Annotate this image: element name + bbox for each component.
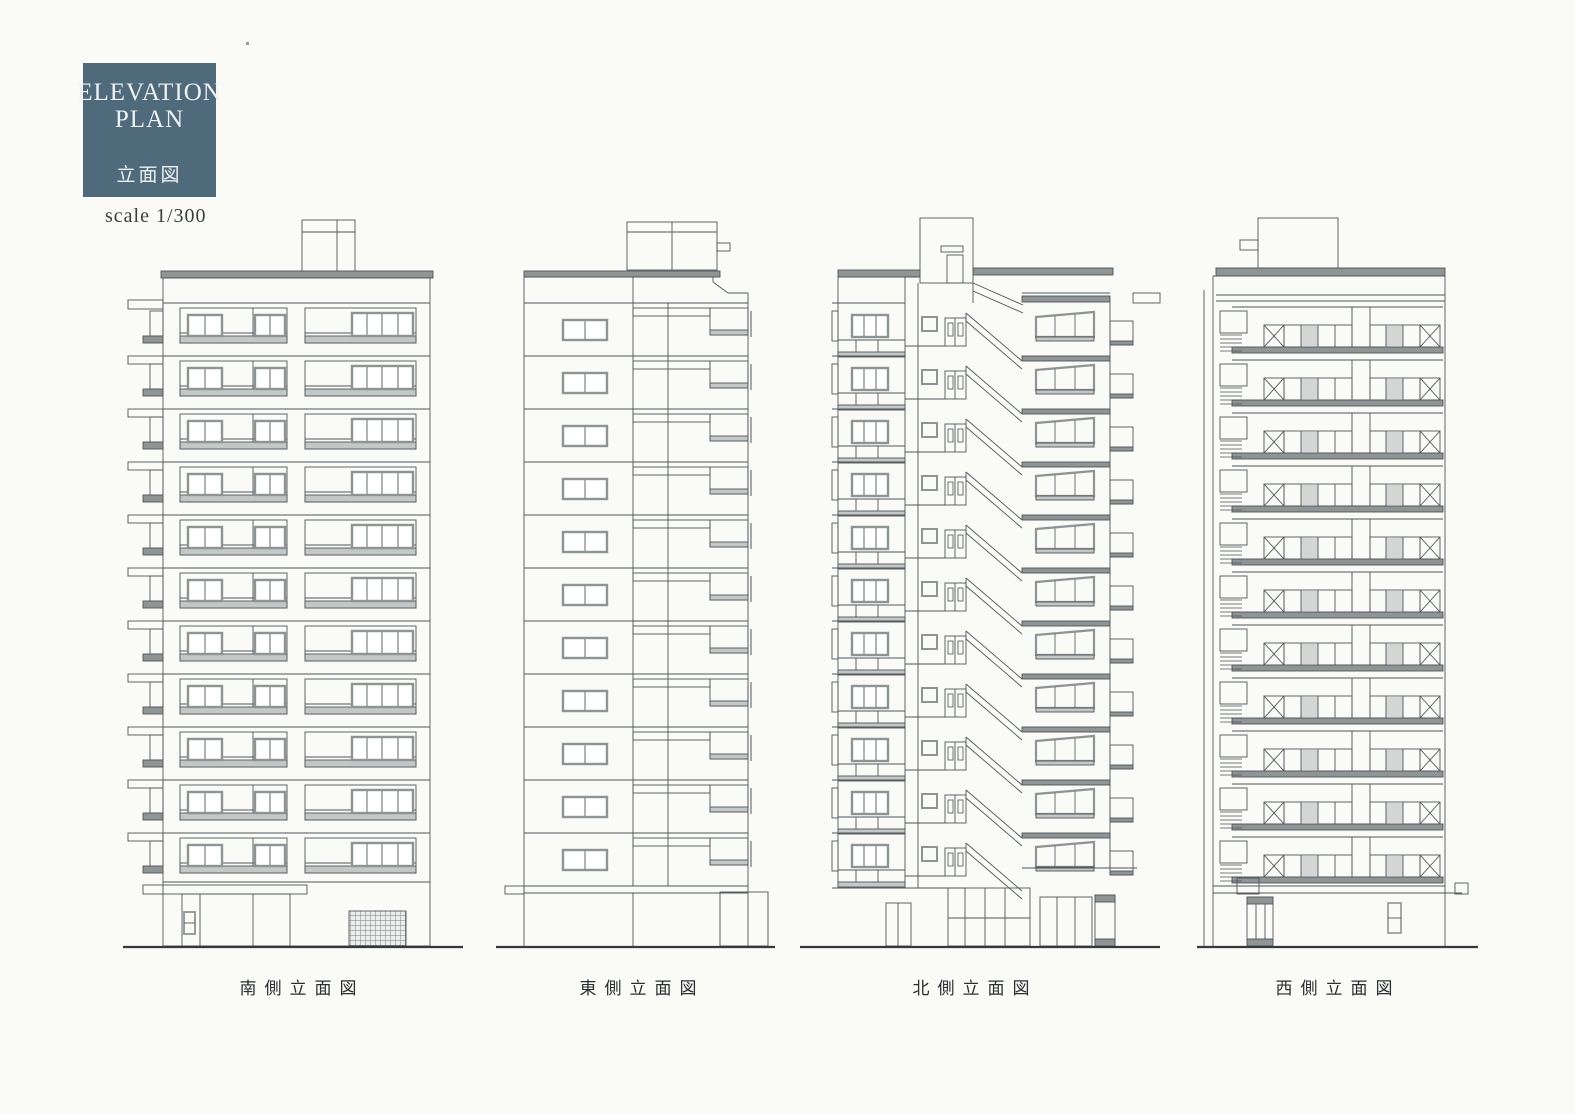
scan-speck [246, 42, 249, 45]
label-east-elevation: 東側立面図 [532, 974, 752, 999]
elevation-south [123, 220, 463, 947]
elevation-west [1197, 218, 1478, 947]
elevation-plan-sheet: ELEVATION PLAN 立面図 scale 1/300 南側立面図 東側立… [0, 0, 1575, 1114]
elevation-north [800, 218, 1160, 947]
label-west-elevation: 西側立面図 [1228, 974, 1448, 999]
elevation-drawings [0, 0, 1575, 1114]
elevation-east [496, 222, 775, 947]
label-south-elevation: 南側立面図 [192, 974, 412, 999]
label-north-elevation: 北側立面図 [865, 974, 1085, 999]
